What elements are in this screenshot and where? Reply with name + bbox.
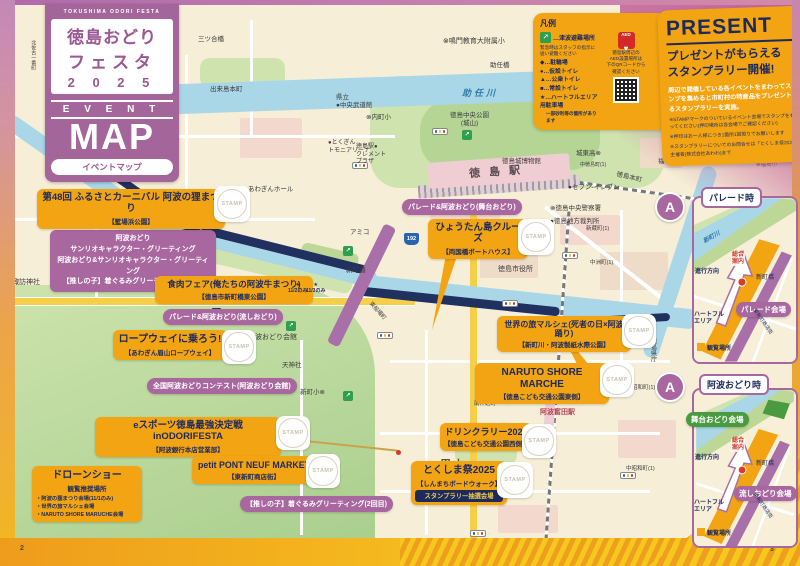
aed-label: AED: [618, 32, 635, 38]
stamp-badge: STAMP: [306, 454, 340, 488]
route-192-badge: 192: [404, 233, 419, 245]
map-label: ●あわぎんホール: [244, 186, 293, 194]
map-label: アミコ: [350, 229, 369, 237]
map-label: 新町橋: [346, 267, 366, 275]
aed-note: 徳島駅周辺の AED設置場所は 下のQRコードから 確認ください: [603, 50, 649, 75]
event-title: 第48回 ふるさとカーニバル 阿波の狸まつり: [41, 193, 221, 215]
map-label: 徳島市役所: [498, 266, 533, 275]
date-note: ★ 11/3のみ: [306, 282, 325, 295]
map-label: ●徳島地方裁判所: [550, 218, 599, 226]
title-line2: フェスタ: [53, 48, 171, 73]
legend-tsunami-note: 緊急時はスタッフの指示に 従い避難ください: [540, 45, 598, 57]
map-label: 城東高⊗: [576, 150, 601, 158]
inset-bridge-label: 新町橋: [756, 458, 774, 467]
inset-direction-label: 進行方向: [695, 266, 719, 275]
event-ropeway[interactable]: ロープウェイに乗ろう! 【あわぎん眉山ロープウェイ】: [113, 330, 227, 360]
inset-info-label: 総合 案内: [731, 252, 745, 266]
event-title: 【推しの子】着ぐるみグリーティング(2回目): [246, 501, 387, 508]
event-venue: 【徳島こども交通公園東側】: [479, 391, 605, 401]
event-venue: 【藍場浜公園】: [41, 216, 221, 226]
evacuation-icon: ↗: [343, 391, 353, 401]
event-title: パレード&阿波おどり(流しおどり): [169, 314, 277, 321]
map-label: 諏訪神社: [12, 279, 40, 288]
map-label: 中昭和町(1): [626, 466, 655, 473]
event-subtitle: 観覧推奨場所: [36, 483, 138, 493]
event-title: とくしま祭2025: [415, 465, 503, 477]
map-label: 徳島中央公園 (城山): [450, 112, 489, 128]
lottery-venue-badge: スタンプラリー抽選会場: [415, 490, 503, 502]
drone-bullet: ・世界の旅マルシェ会場: [36, 503, 138, 511]
map-label: 昭和町(1): [632, 385, 655, 392]
event-venue: 【しんまちボードウォーク】: [415, 478, 503, 488]
legend-item: ■…常設トイレ: [540, 85, 598, 94]
map-label: 県立 ●中央武道館: [336, 94, 372, 110]
traffic-signal-icon: [432, 128, 448, 135]
title-year: 2 0 2 5: [53, 75, 171, 90]
inset-heartful-label: ハートフル エリア: [694, 312, 724, 326]
viewing-text: 観覧場所: [707, 346, 731, 352]
event-venue: 【あわぎん眉山ロープウェイ】: [117, 347, 223, 357]
evacuation-icon: ↗: [286, 321, 296, 331]
map-label: 徳島城博物館: [502, 158, 541, 166]
present-panel: PRESENT プレゼントがもらえる スタンプラリー開催! 周辺で開催している各…: [657, 5, 800, 166]
event-venue: 【阿波銀行本店営業部】: [99, 444, 277, 454]
event-venue: 【新町川・阿波製紙水際公園】: [501, 339, 627, 349]
stamp-badge: STAMP: [522, 424, 556, 458]
stamp-label: STAMP: [224, 332, 253, 361]
map-label: 出来島本町: [210, 86, 243, 94]
event-line: サンリオキャラクター・グリーティング: [54, 245, 212, 256]
a-marker-label: A: [665, 199, 675, 215]
inset-info-label: 総合 案内: [731, 438, 745, 452]
legend-panel: 凡例 ↗…津波避難場所 緊急時はスタッフの指示に 従い避難ください ◆…駐輪場 …: [533, 13, 669, 130]
parade-inset-map: [692, 196, 798, 364]
present-title: PRESENT: [666, 13, 799, 46]
event-venue: 【徳島こども交通公園西側】: [444, 438, 528, 448]
stamp-label: STAMP: [500, 465, 531, 496]
map-label: 中洲町(1): [590, 260, 613, 267]
event-title: ドローンショー: [36, 470, 138, 482]
a-marker-awaodori: A: [655, 372, 685, 402]
stamp-label: STAMP: [521, 222, 552, 253]
event-line: 阿波おどり: [54, 234, 212, 245]
stamp-label: STAMP: [524, 426, 553, 455]
map-label: 新蔵町(1): [586, 226, 609, 233]
evacuation-icon: ↗: [462, 130, 472, 140]
map-label: ⊗鳴門教育大附属小: [443, 38, 505, 47]
event-hyotanjima-cruise[interactable]: ひょうたん島クルーズ 【両国橋ボートハウス】: [428, 219, 528, 259]
stamp-badge: STAMP: [276, 416, 310, 450]
inset-heartful-label: ハートフル エリア: [694, 500, 724, 514]
traffic-signal-icon: [502, 300, 518, 307]
map-label: 中徳島町(1): [580, 162, 606, 168]
event-venue: 【両国橋ボートハウス】: [432, 246, 524, 256]
road: [250, 20, 253, 138]
present-headline1: プレゼントがもらえる: [667, 47, 782, 63]
map-label: 新町小⊗: [300, 389, 325, 397]
stamp-badge: STAMP: [518, 219, 554, 255]
map-label: 北佐古一番町: [30, 40, 36, 70]
qr-code: [613, 77, 639, 103]
inset-direction-label: 進行方向: [695, 452, 719, 461]
event-oshinoko-2[interactable]: 【推しの子】着ぐるみグリーティング(2回目): [240, 496, 393, 512]
event-esports[interactable]: eスポーツ徳島最強決定戦inODORIFESTA 【阿波銀行本店営業部】: [95, 417, 281, 457]
event-title: petit PONT NEUF MARKET: [196, 460, 312, 470]
event-odori-contest[interactable]: 全国阿波おどりコンテスト(阿波おどり会館): [147, 378, 297, 394]
date-note: ★ 11/2のみ: [288, 282, 307, 295]
present-body: 周辺で開催している各イベントをまわってスタンプを集めると市町村の特産品をプレゼン…: [668, 82, 800, 114]
map-label: ●セブン-イレブン: [568, 184, 620, 192]
event-venue: 【徳島市新町橋東公園】: [159, 291, 309, 301]
stamp-badge: STAMP: [214, 186, 250, 222]
event-title: 世界の旅マルシェ(死者の日×阿波踊り): [501, 320, 627, 338]
event-map-page: 徳島駅 ▲ ▲ ▲ ↗ ↗ ↗ ↗ 192 佐古駅 北佐古一番町 三ツ合橋 出来…: [0, 0, 800, 566]
legend-item: ●…仮設トイレ: [540, 68, 598, 77]
event-title: ひょうたん島クルーズ: [432, 223, 524, 245]
event-pont-neuf-market[interactable]: petit PONT NEUF MARKET 【東新町商店街】: [192, 456, 316, 484]
stamp-badge: STAMP: [622, 314, 656, 348]
event-drink-rally[interactable]: ドリンクラリー2025 【徳島こども交通公園西側】: [440, 423, 532, 451]
parade-inset-art: [694, 198, 796, 362]
event-tanuki-matsuri[interactable]: 第48回 ふるさとカーニバル 阿波の狸まつり 【藍場浜公園】: [37, 189, 225, 229]
map-label: 阿波富田駅: [540, 409, 575, 418]
stamp-badge: STAMP: [497, 462, 533, 498]
page-number-left: 2: [20, 545, 24, 552]
traffic-signal-icon: [562, 252, 578, 259]
nagashi-venue-label: 流しおどり会場: [734, 486, 797, 501]
event-naruto-shore-marche[interactable]: NARUTO SHORE MARCHE 【徳島こども交通公園東側】: [475, 363, 609, 404]
map-label: 助任川: [462, 88, 498, 99]
map-label: ⊗福島小: [756, 162, 777, 169]
legend-title: 凡例: [540, 18, 662, 29]
awaodori-header-label: 阿波おどり時: [707, 380, 761, 390]
parade-inset-header: パレード時: [701, 187, 762, 208]
present-note: ※STAMPマークのついているイベント会場でスタンプをもらってください(押印場所…: [669, 113, 800, 132]
event-title: ロープウェイに乗ろう!: [117, 334, 223, 346]
event-title: 食肉フェア(俺たちの阿波牛まつり): [159, 280, 309, 290]
event-venue: 【東新町商店街】: [196, 471, 312, 481]
event-parade-nagashi[interactable]: パレード&阿波おどり(流しおどり): [163, 309, 283, 325]
event-title: ドリンクラリー2025: [444, 427, 528, 437]
title-map: MAP: [51, 119, 173, 156]
event-sekai-marche[interactable]: 世界の旅マルシェ(死者の日×阿波踊り) 【新町川・阿波製紙水際公園】: [497, 316, 631, 352]
viewing-swatch: [697, 528, 705, 536]
event-drone-show[interactable]: ドローンショー 観覧推奨場所 ・阿波の狸まつり会場(11/1のみ) ・世界の旅マ…: [32, 466, 142, 522]
parade-header-label: パレード時: [709, 193, 754, 203]
title-block: TOKUSHIMA ODORI FESTA 徳島おどり フェスタ 2 0 2 5…: [45, 4, 179, 182]
event-title: eスポーツ徳島最強決定戦inODORIFESTA: [99, 421, 277, 443]
stamp-label: STAMP: [308, 456, 337, 485]
title-subtitle: イベントマップ: [51, 159, 173, 175]
a-marker-label: A: [665, 379, 675, 395]
legend-tsunami: …津波避難場所: [553, 33, 595, 42]
stamp-label: STAMP: [602, 365, 631, 394]
title-line1: 徳島おどり: [53, 23, 171, 48]
tsunami-evac-icon: ↗: [540, 32, 551, 43]
drone-bullet: ・阿波の狸まつり会場(11/1のみ): [36, 495, 138, 503]
event-title: 全国阿波おどりコンテスト(阿波おどり会館): [153, 383, 291, 390]
event-title: NARUTO SHORE MARCHE: [479, 367, 605, 390]
present-note: ※スタンプラリーについてのお問合せは「とくしま祭2025」主催者(株式会社あわわ…: [670, 140, 800, 159]
evacuation-icon: ↗: [343, 246, 353, 256]
map-label: ⊗内町小: [366, 114, 391, 122]
title-english: TOKUSHIMA ODORI FESTA: [51, 9, 173, 15]
awaodori-inset-header: 阿波おどり時: [699, 374, 769, 395]
inset-bridge-label: 新町橋: [756, 272, 774, 281]
aed-icon: AED♥: [618, 32, 635, 49]
stamp-badge: STAMP: [222, 330, 256, 364]
stamp-label: STAMP: [278, 418, 307, 447]
title-japanese-panel: 徳島おどり フェスタ 2 0 2 5: [51, 19, 173, 94]
map-label: 助任橋: [490, 62, 510, 70]
event-tokushima-sai[interactable]: とくしま祭2025 【しんまちボードウォーク】 スタンプラリー抽選会場: [411, 461, 507, 505]
stamp-label: STAMP: [217, 189, 248, 220]
legend-item: ◆…駐輪場: [540, 59, 598, 68]
drone-bullet: ・NARUTO SHORE MARUCHE会場: [36, 511, 138, 519]
map-label: ⊗徳島中央警察署: [550, 205, 601, 213]
viewing-text: 観覧場所: [707, 531, 731, 537]
stamp-badge: STAMP: [600, 363, 634, 397]
legend-item-note: 一部砂利等の箇所があります: [546, 111, 598, 125]
inset-viewing-label: 観覧場所: [697, 343, 731, 352]
event-parade-butai[interactable]: パレード&阿波おどり(舞台おどり): [402, 199, 522, 215]
map-label: 三ツ合橋: [198, 36, 224, 44]
city-block: [618, 420, 676, 458]
traffic-signal-icon: [470, 530, 486, 537]
map-label: ●とくぎん トモニアリーナ: [328, 140, 370, 155]
drone-point-dot: [396, 450, 401, 455]
legend-item: ▲…公衆トイレ: [540, 76, 598, 85]
present-headline2: スタンプラリー開催!: [667, 63, 774, 79]
viewing-swatch: [697, 343, 705, 351]
a-marker-parade: A: [655, 192, 685, 222]
stage-venue-label: 舞台おどり会場: [686, 412, 749, 427]
traffic-signal-icon: [377, 332, 393, 339]
legend-item: ★…ハートフルエリア用駐車場: [540, 94, 598, 111]
inset-viewing-label: 観覧場所: [697, 528, 731, 537]
traffic-signal-icon: [620, 472, 636, 479]
stamp-label: STAMP: [624, 316, 653, 345]
map-label: 天神社: [282, 362, 302, 370]
parade-venue-label: パレード会場: [736, 302, 791, 317]
map-label: 佐古駅: [4, 116, 12, 136]
event-title: パレード&阿波おどり(舞台おどり): [408, 204, 516, 211]
event-line: 阿波おどり&サンリオキャラクター・グリーティング: [54, 256, 212, 278]
